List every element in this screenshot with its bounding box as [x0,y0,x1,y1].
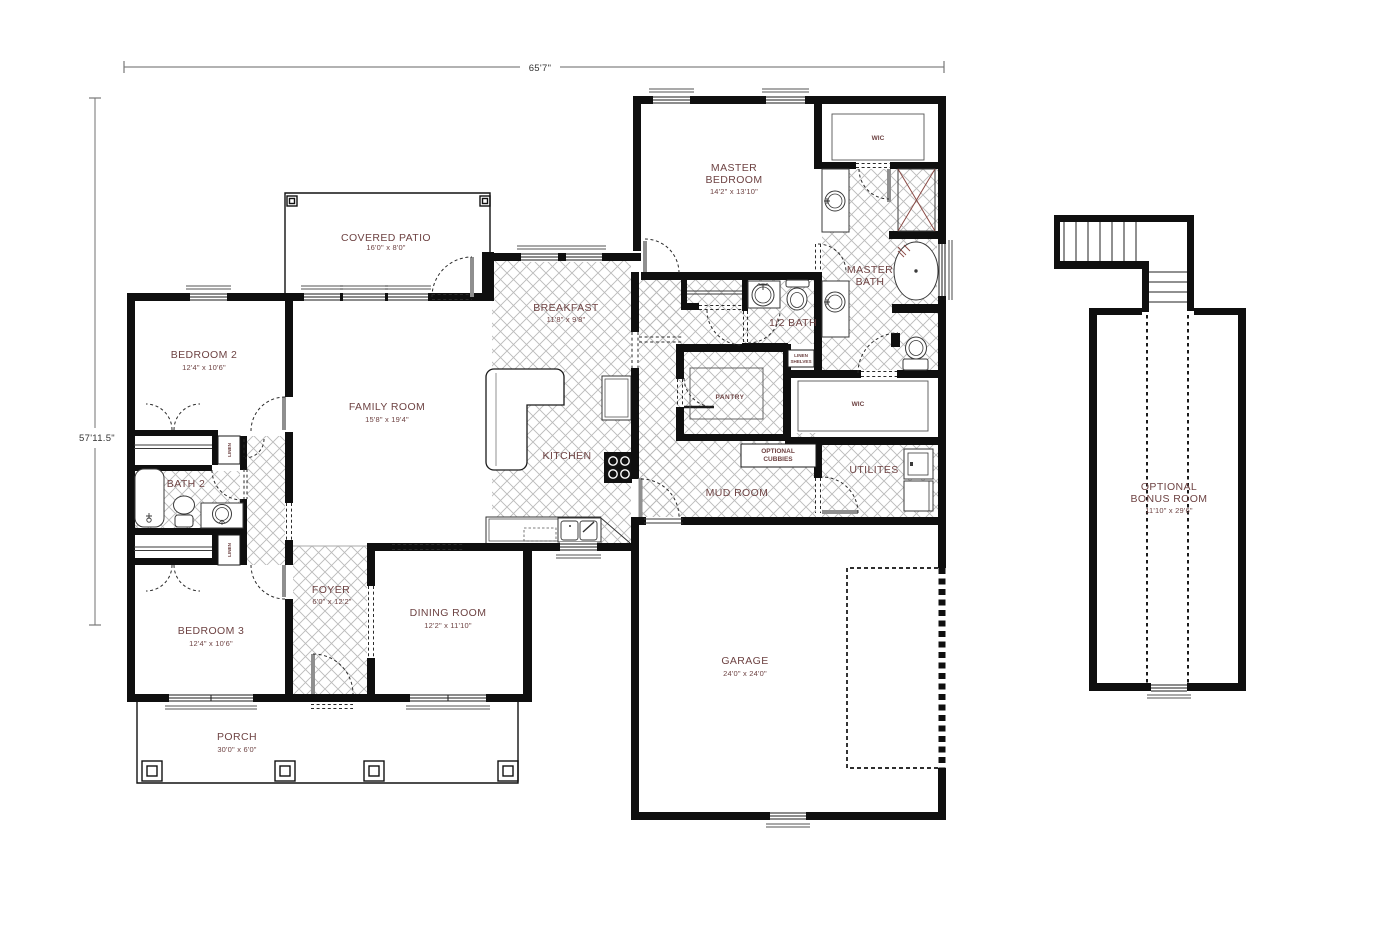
svg-text:BATH 2: BATH 2 [167,478,205,490]
svg-text:6'0" x 12'2": 6'0" x 12'2" [312,597,351,606]
svg-text:WIC: WIC [852,401,865,408]
svg-text:DINING ROOM: DINING ROOM [410,607,487,619]
svg-text:PORCH: PORCH [217,731,257,743]
svg-text:11'8" x 9'8": 11'8" x 9'8" [547,315,586,324]
svg-text:PANTRY: PANTRY [716,394,745,401]
svg-text:LINEN: LINEN [794,353,808,358]
svg-text:OPTIONAL: OPTIONAL [1141,481,1197,493]
svg-text:24'0" x 24'0": 24'0" x 24'0" [723,669,767,678]
svg-text:MUD ROOM: MUD ROOM [706,487,769,499]
svg-text:GARAGE: GARAGE [721,655,768,667]
svg-text:1/2 BATH: 1/2 BATH [769,317,817,329]
svg-text:LINEN: LINEN [227,442,232,456]
svg-text:SHELVES: SHELVES [790,359,811,364]
svg-text:KITCHEN: KITCHEN [543,450,592,462]
svg-text:12'4" x 10'6": 12'4" x 10'6" [182,363,226,372]
svg-text:65'7": 65'7" [529,63,552,74]
svg-text:BREAKFAST: BREAKFAST [533,302,599,314]
svg-text:FAMILY ROOM: FAMILY ROOM [349,401,425,413]
svg-text:BONUS ROOM: BONUS ROOM [1131,493,1208,505]
svg-text:57'11.5": 57'11.5" [79,433,115,444]
svg-text:BEDROOM: BEDROOM [705,174,762,186]
svg-text:12'4" x 10'6": 12'4" x 10'6" [189,639,233,648]
svg-text:FOYER: FOYER [312,584,350,596]
svg-text:14'2" x 13'10": 14'2" x 13'10" [710,187,758,196]
svg-text:MASTER: MASTER [847,264,893,276]
svg-text:BEDROOM 2: BEDROOM 2 [171,349,238,361]
svg-text:16'0" x 8'0": 16'0" x 8'0" [366,243,405,252]
svg-text:OPTIONAL: OPTIONAL [761,448,795,455]
svg-text:11'10" x 29'6": 11'10" x 29'6" [1145,506,1193,515]
svg-text:BATH: BATH [856,276,885,288]
svg-text:LINEN: LINEN [227,542,232,556]
svg-text:15'8" x 19'4": 15'8" x 19'4" [365,415,409,424]
svg-text:MASTER: MASTER [711,162,757,174]
svg-text:BEDROOM 3: BEDROOM 3 [178,625,245,637]
svg-text:UTILITES: UTILITES [849,464,898,476]
svg-text:30'0" x 6'0": 30'0" x 6'0" [217,745,256,754]
svg-text:WIC: WIC [872,135,885,142]
svg-text:CUBBIES: CUBBIES [763,456,793,463]
svg-text:12'2" x 11'10": 12'2" x 11'10" [424,621,472,630]
